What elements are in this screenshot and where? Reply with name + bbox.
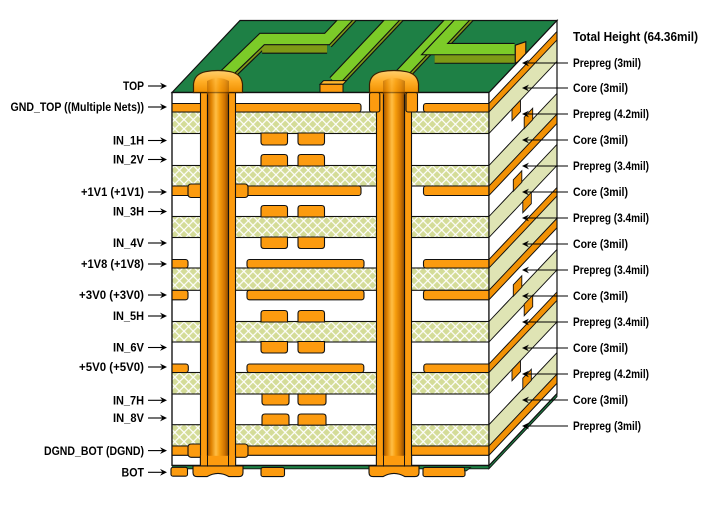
svg-text:+1V1 (+1V1): +1V1 (+1V1) bbox=[81, 185, 144, 199]
svg-text:Core (3mil): Core (3mil) bbox=[573, 185, 628, 199]
svg-text:+5V0 (+5V0): +5V0 (+5V0) bbox=[79, 360, 144, 374]
svg-text:TOP: TOP bbox=[123, 79, 144, 93]
svg-text:Prepreg (3.4mil): Prepreg (3.4mil) bbox=[573, 315, 649, 329]
svg-text:IN_2V: IN_2V bbox=[113, 153, 144, 167]
svg-text:DGND_BOT (DGND): DGND_BOT (DGND) bbox=[44, 444, 144, 458]
svg-text:Prepreg (3.4mil): Prepreg (3.4mil) bbox=[573, 211, 649, 225]
svg-text:BOT: BOT bbox=[122, 466, 145, 480]
svg-text:Prepreg (3.4mil): Prepreg (3.4mil) bbox=[573, 263, 649, 277]
svg-text:Core (3mil): Core (3mil) bbox=[573, 289, 628, 303]
svg-text:Prepreg (3mil): Prepreg (3mil) bbox=[573, 419, 641, 433]
svg-text:IN_3H: IN_3H bbox=[113, 205, 144, 219]
svg-text:Core (3mil): Core (3mil) bbox=[573, 341, 628, 355]
svg-text:+1V8 (+1V8): +1V8 (+1V8) bbox=[81, 257, 144, 271]
svg-text:Prepreg (3.4mil): Prepreg (3.4mil) bbox=[573, 159, 649, 173]
svg-text:Prepreg (4.2mil): Prepreg (4.2mil) bbox=[573, 367, 649, 381]
svg-text:+3V0 (+3V0): +3V0 (+3V0) bbox=[79, 288, 144, 302]
svg-text:IN_5H: IN_5H bbox=[113, 309, 144, 323]
svg-text:Prepreg (4.2mil): Prepreg (4.2mil) bbox=[573, 107, 649, 121]
svg-text:IN_6V: IN_6V bbox=[113, 341, 144, 355]
svg-text:IN_8V: IN_8V bbox=[113, 411, 144, 425]
svg-text:Core (3mil): Core (3mil) bbox=[573, 133, 628, 147]
svg-text:IN_7H: IN_7H bbox=[113, 394, 144, 408]
svg-text:Total Height (64.36mil): Total Height (64.36mil) bbox=[573, 29, 698, 44]
svg-text:Core (3mil): Core (3mil) bbox=[573, 237, 628, 251]
svg-text:Prepreg (3mil): Prepreg (3mil) bbox=[573, 56, 641, 70]
svg-text:Core (3mil): Core (3mil) bbox=[573, 81, 628, 95]
svg-text:GND_TOP ((Multiple Nets)): GND_TOP ((Multiple Nets)) bbox=[11, 100, 145, 114]
svg-text:Core (3mil): Core (3mil) bbox=[573, 393, 628, 407]
svg-text:IN_4V: IN_4V bbox=[113, 236, 144, 250]
svg-text:IN_1H: IN_1H bbox=[113, 134, 144, 148]
